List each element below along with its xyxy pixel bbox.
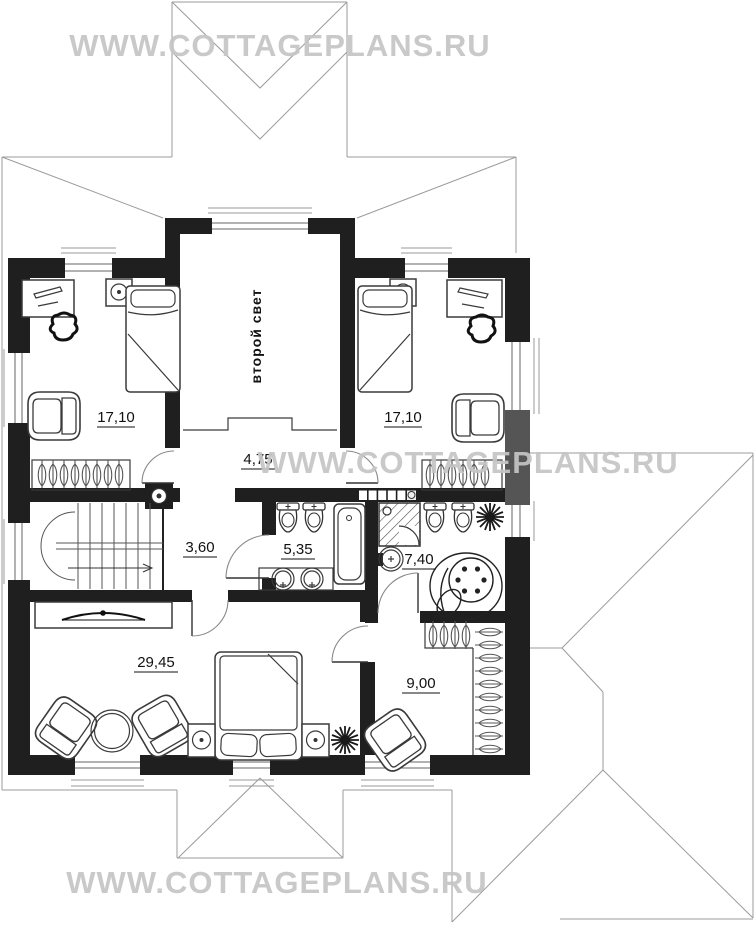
desk-right xyxy=(447,280,502,317)
closet-hangers-right xyxy=(475,628,503,753)
desk-left xyxy=(22,280,74,317)
door-bedroom-left xyxy=(142,451,174,483)
double-bed xyxy=(215,652,302,760)
furniture-bedroom-left xyxy=(22,279,180,490)
void-floor-edge xyxy=(183,418,337,430)
window-right-1 xyxy=(505,338,539,414)
window-top-right xyxy=(401,248,452,278)
wall-dressing-a xyxy=(360,602,375,622)
closet-hangers-top xyxy=(429,621,470,649)
area-master-bedroom: 29,45 xyxy=(137,654,175,671)
armchair-left-bedroom xyxy=(28,392,80,440)
area-master-bathroom: 7,40 xyxy=(404,551,433,568)
wall-divider-right xyxy=(340,218,355,448)
round-sink xyxy=(378,547,403,571)
watermark-middle: WWW.COTTAGEPLANS.RU xyxy=(257,445,678,480)
chimney-flue xyxy=(145,483,173,509)
wall-left xyxy=(8,258,30,775)
toilet-1 xyxy=(277,503,299,532)
staircase xyxy=(41,503,163,589)
tv-stand xyxy=(35,602,172,628)
spa-chair xyxy=(430,553,502,621)
area-hall: 3,60 xyxy=(185,539,214,556)
master-bathroom-fixtures xyxy=(378,503,504,621)
top-hips xyxy=(2,157,516,218)
armchair-right-bedroom xyxy=(452,394,504,442)
top-gable xyxy=(172,2,347,139)
dressing-room-furniture xyxy=(360,621,503,775)
nightstand-bed-right xyxy=(302,724,329,757)
window-right-2 xyxy=(505,501,534,541)
window-bottom-1 xyxy=(71,755,144,786)
second-light-label: второй свет xyxy=(248,289,264,384)
window-left-1 xyxy=(4,349,30,427)
door-bathroom xyxy=(226,535,269,578)
area-dressing-room: 9,00 xyxy=(406,675,435,692)
stair-turn-arc xyxy=(41,512,75,580)
bathtub xyxy=(334,504,365,584)
toilet-3 xyxy=(424,503,446,532)
desk-chair-right xyxy=(468,315,495,342)
nightstand-bed-left xyxy=(188,724,215,757)
area-bedroom-right: 17,10 xyxy=(384,409,422,426)
wall-master-top-b xyxy=(228,590,370,602)
armchair-2 xyxy=(128,691,196,760)
watermark-bottom: WWW.COTTAGEPLANS.RU xyxy=(66,865,487,900)
round-table xyxy=(91,710,133,752)
master-bedroom-furniture xyxy=(31,602,359,763)
wall-hall-bath-b xyxy=(262,578,276,590)
toilet-2 xyxy=(303,503,325,532)
window-top-left xyxy=(61,248,116,278)
wall-hall-bath-a xyxy=(262,502,276,535)
wall-masterbath-bottom xyxy=(420,611,530,623)
toilet-4 xyxy=(452,503,474,532)
armchair-1 xyxy=(31,693,100,763)
wardrobe-left xyxy=(32,460,130,490)
door-dressing-room xyxy=(332,626,368,662)
plant-bathroom xyxy=(476,503,504,531)
plant-master-bedroom xyxy=(331,726,359,754)
bottom-gable xyxy=(177,778,343,858)
floor-plan-drawing: второй свет 17,10 17,10 4,75 3,60 5,35 7… xyxy=(0,0,756,925)
bed-left xyxy=(126,286,180,392)
door-master-bathroom xyxy=(378,573,418,613)
door-master-bedroom xyxy=(192,600,228,636)
area-bedroom-left: 17,10 xyxy=(97,409,135,426)
window-left-2 xyxy=(4,519,30,584)
window-bay xyxy=(208,208,312,234)
shower-cabin xyxy=(379,503,420,546)
bed-right xyxy=(358,286,412,392)
wall-master-top-a xyxy=(8,590,192,602)
watermark-top: WWW.COTTAGEPLANS.RU xyxy=(69,28,490,63)
stair-direction-arrow xyxy=(68,564,152,572)
area-bathroom: 5,35 xyxy=(283,541,312,558)
floor-plan-page: второй свет 17,10 17,10 4,75 3,60 5,35 7… xyxy=(0,0,756,925)
